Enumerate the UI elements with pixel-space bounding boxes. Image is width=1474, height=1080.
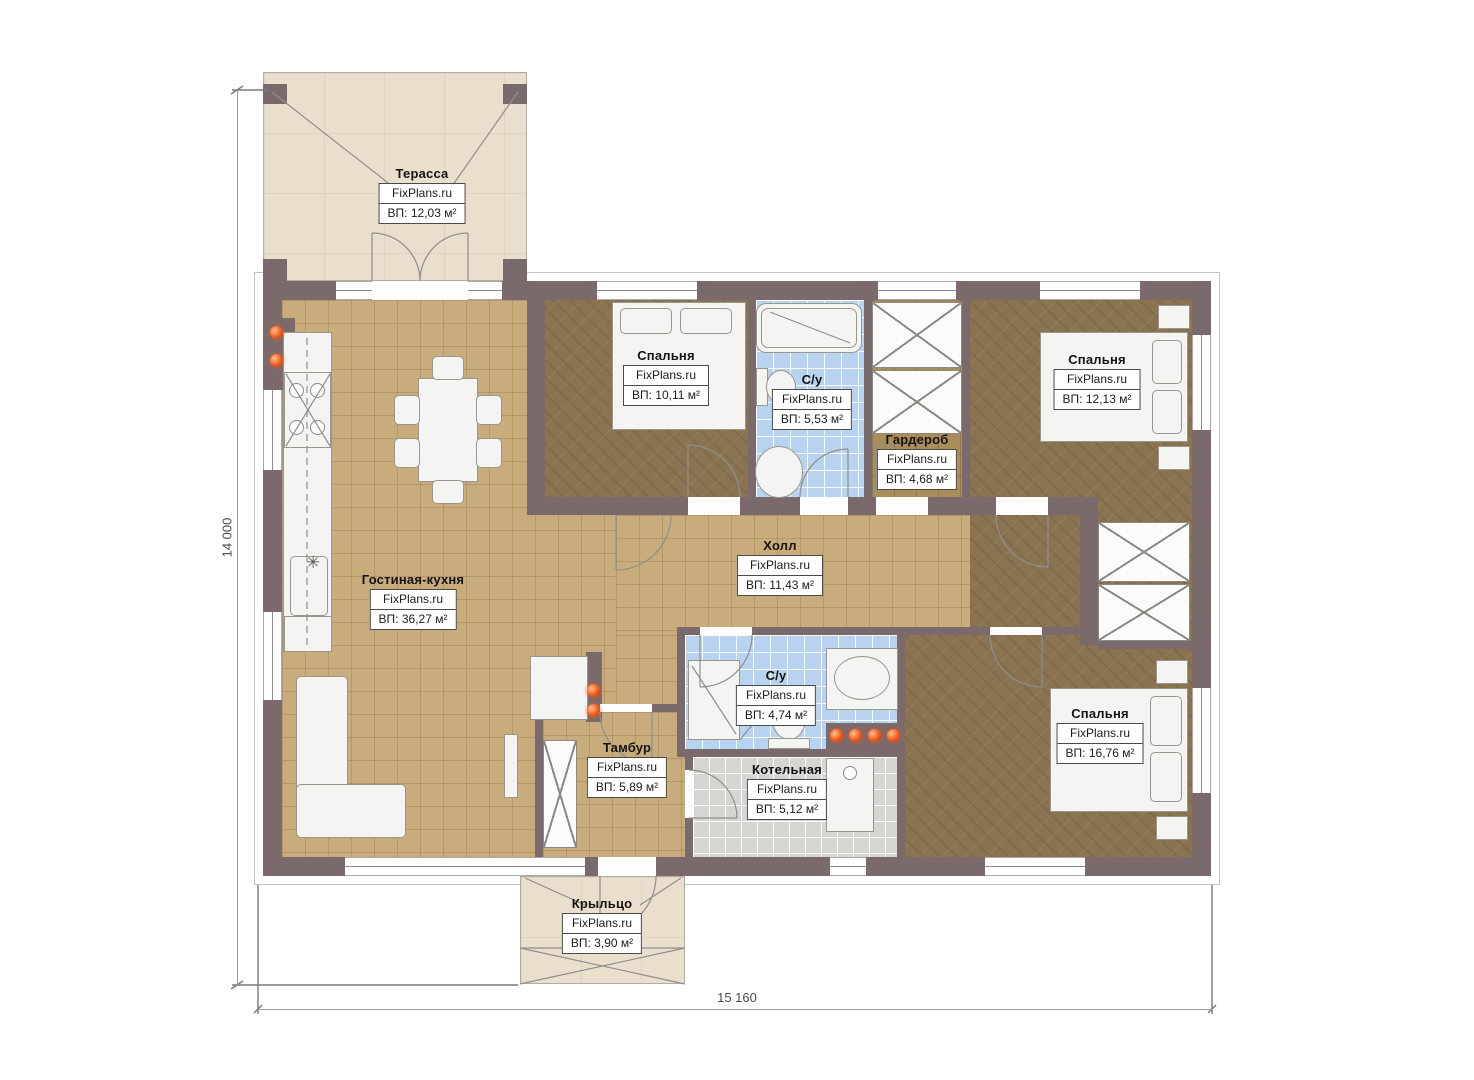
watermark: FixPlans.ru xyxy=(588,758,666,777)
chair xyxy=(432,356,464,380)
chair xyxy=(476,438,502,468)
room-label-boiler: Котельная FixPlans.ru ВП: 5,12 м² xyxy=(747,762,827,820)
fireplace-cabinet xyxy=(530,656,588,720)
room-name: Спальня xyxy=(1057,706,1144,721)
wall-wardrobe-bedroom2 xyxy=(962,300,970,515)
terrace-post xyxy=(263,84,287,104)
window xyxy=(1040,281,1140,300)
dining-table xyxy=(418,378,478,482)
floor-hall-passage xyxy=(616,635,677,712)
room-label-bath2: С/у FixPlans.ru ВП: 4,74 м² xyxy=(736,668,816,726)
window xyxy=(336,281,374,300)
door-opening-porch xyxy=(598,857,656,876)
window xyxy=(597,281,697,300)
watermark: FixPlans.ru xyxy=(380,184,465,203)
wall-bath1-wardrobe xyxy=(864,300,872,497)
window xyxy=(830,857,866,876)
wall-light xyxy=(868,729,881,742)
stove xyxy=(284,372,331,448)
room-name: Спальня xyxy=(1054,352,1141,367)
sofa xyxy=(296,784,406,838)
room-label-porch: Крыльцо FixPlans.ru ВП: 3,90 м² xyxy=(562,896,642,954)
window xyxy=(263,612,282,700)
wall-tambour-left xyxy=(535,704,543,857)
room-name: Спальня xyxy=(623,348,709,363)
nightstand xyxy=(1158,446,1190,470)
wall-light xyxy=(887,729,900,742)
room-label-hall: Холл FixPlans.ru ВП: 11,43 м² xyxy=(737,538,823,596)
dimension-line-horizontal xyxy=(258,1009,1212,1010)
nightstand xyxy=(1158,305,1190,329)
watermark: FixPlans.ru xyxy=(1058,724,1143,743)
dimension-value-vertical: 14 000 xyxy=(220,507,235,569)
window xyxy=(468,281,502,300)
room-area: ВП: 3,90 м² xyxy=(563,933,641,953)
door-opening-bath1 xyxy=(800,497,848,515)
room-label-bedroom1: Спальня FixPlans.ru ВП: 10,11 м² xyxy=(623,348,709,406)
watermark: FixPlans.ru xyxy=(624,366,708,385)
wall-bedroom2-bedroom3 xyxy=(1098,641,1192,649)
room-area: ВП: 12,03 м² xyxy=(380,203,465,223)
watermark: FixPlans.ru xyxy=(1055,370,1140,389)
watermark: FixPlans.ru xyxy=(878,450,956,469)
wall-light xyxy=(849,729,862,742)
bathtub xyxy=(756,303,862,353)
room-label-bath1: С/у FixPlans.ru ВП: 5,53 м² xyxy=(772,372,852,430)
chair xyxy=(394,438,420,468)
watermark: FixPlans.ru xyxy=(738,556,822,575)
door-opening-bedroom1 xyxy=(688,497,740,515)
chair xyxy=(476,395,502,425)
room-name: Крыльцо xyxy=(562,896,642,911)
kitchen-cabinet xyxy=(284,616,332,652)
room-area: ВП: 4,68 м² xyxy=(878,469,956,489)
wall-light xyxy=(830,729,843,742)
watermark: FixPlans.ru xyxy=(748,780,826,799)
room-area: ВП: 12,13 м² xyxy=(1055,389,1140,409)
pillow xyxy=(620,308,672,334)
floor-symbol: ✳ xyxy=(306,553,320,573)
chair xyxy=(394,395,420,425)
room-label-wardrobe: Гардероб FixPlans.ru ВП: 4,68 м² xyxy=(877,432,957,490)
room-name: Терасса xyxy=(379,166,466,181)
nightstand xyxy=(1156,660,1188,684)
window xyxy=(878,281,956,300)
terrace-post xyxy=(503,259,527,281)
door-opening-boiler xyxy=(685,770,693,818)
nightstand xyxy=(1156,816,1188,840)
wall-bath2-left xyxy=(677,627,685,757)
wall-light xyxy=(587,684,600,697)
pillow xyxy=(680,308,732,334)
stove-burner xyxy=(289,420,304,435)
wall-light xyxy=(270,354,283,367)
sink xyxy=(755,446,803,498)
shower xyxy=(688,660,740,740)
room-name: Гостиная-кухня xyxy=(362,572,464,587)
wall-light xyxy=(587,704,600,717)
toilet-tank xyxy=(768,738,810,749)
room-area: ВП: 5,53 м² xyxy=(773,409,851,429)
window xyxy=(345,857,585,876)
room-name: Тамбур xyxy=(587,740,667,755)
pillow xyxy=(1150,752,1182,802)
stove-burner xyxy=(289,383,304,398)
watermark: FixPlans.ru xyxy=(737,686,815,705)
room-name: Холл xyxy=(737,538,823,553)
window xyxy=(1192,688,1211,793)
room-label-living: Гостиная-кухня FixPlans.ru ВП: 36,27 м² xyxy=(362,572,464,630)
room-area: ВП: 11,43 м² xyxy=(738,575,822,595)
wall-bedroom2-niche xyxy=(1080,497,1098,645)
wall-bath2-bottom xyxy=(685,749,897,757)
room-label-tambour: Тамбур FixPlans.ru ВП: 5,89 м² xyxy=(587,740,667,798)
watermark: FixPlans.ru xyxy=(371,590,456,609)
room-area: ВП: 16,76 м² xyxy=(1058,743,1143,763)
room-label-bedroom2: Спальня FixPlans.ru ВП: 12,13 м² xyxy=(1054,352,1141,410)
stove-burner xyxy=(310,383,325,398)
dimension-line-vertical xyxy=(237,90,238,985)
room-name: Котельная xyxy=(747,762,827,777)
watermark: FixPlans.ru xyxy=(773,390,851,409)
floor-plan: ✳ xyxy=(0,0,1474,1080)
room-label-bedroom3: Спальня FixPlans.ru ВП: 16,76 м² xyxy=(1057,706,1144,764)
sink xyxy=(834,656,890,700)
dimension-value-horizontal: 15 160 xyxy=(702,990,772,1005)
room-area: ВП: 10,11 м² xyxy=(624,385,708,405)
chair xyxy=(432,480,464,504)
room-label-terrace: Терасса FixPlans.ru ВП: 12,03 м² xyxy=(379,166,466,224)
pillow xyxy=(1152,340,1182,384)
room-area: ВП: 36,27 м² xyxy=(371,609,456,629)
room-area: ВП: 5,89 м² xyxy=(588,777,666,797)
closet xyxy=(543,740,577,848)
closet xyxy=(1098,584,1190,641)
stove-burner xyxy=(310,420,325,435)
room-name: С/у xyxy=(772,372,852,387)
pillow xyxy=(1150,696,1182,746)
door-opening-terrace xyxy=(372,281,468,300)
tv-stand xyxy=(504,734,518,798)
room-area: ВП: 4,74 м² xyxy=(737,705,815,725)
pillow xyxy=(1152,390,1182,434)
wall-living-bedroom1 xyxy=(527,300,545,515)
door-opening-bedroom2 xyxy=(996,497,1048,515)
room-name: С/у xyxy=(736,668,816,683)
closet xyxy=(872,370,962,434)
closet xyxy=(872,302,962,368)
wall-light xyxy=(270,326,283,339)
door-opening-tambour xyxy=(600,704,652,712)
room-name: Гардероб xyxy=(877,432,957,447)
room-area: ВП: 5,12 м² xyxy=(748,799,826,819)
door-opening-bath2 xyxy=(700,627,752,635)
door-opening-wardrobe xyxy=(876,497,928,515)
window xyxy=(985,857,1085,876)
terrace-post xyxy=(263,259,287,281)
terrace-post xyxy=(503,84,527,104)
window xyxy=(263,390,282,470)
closet xyxy=(1098,522,1190,582)
door-opening-bedroom3 xyxy=(990,627,1042,635)
boiler-dial xyxy=(843,766,857,780)
window xyxy=(1192,335,1211,430)
watermark: FixPlans.ru xyxy=(563,914,641,933)
